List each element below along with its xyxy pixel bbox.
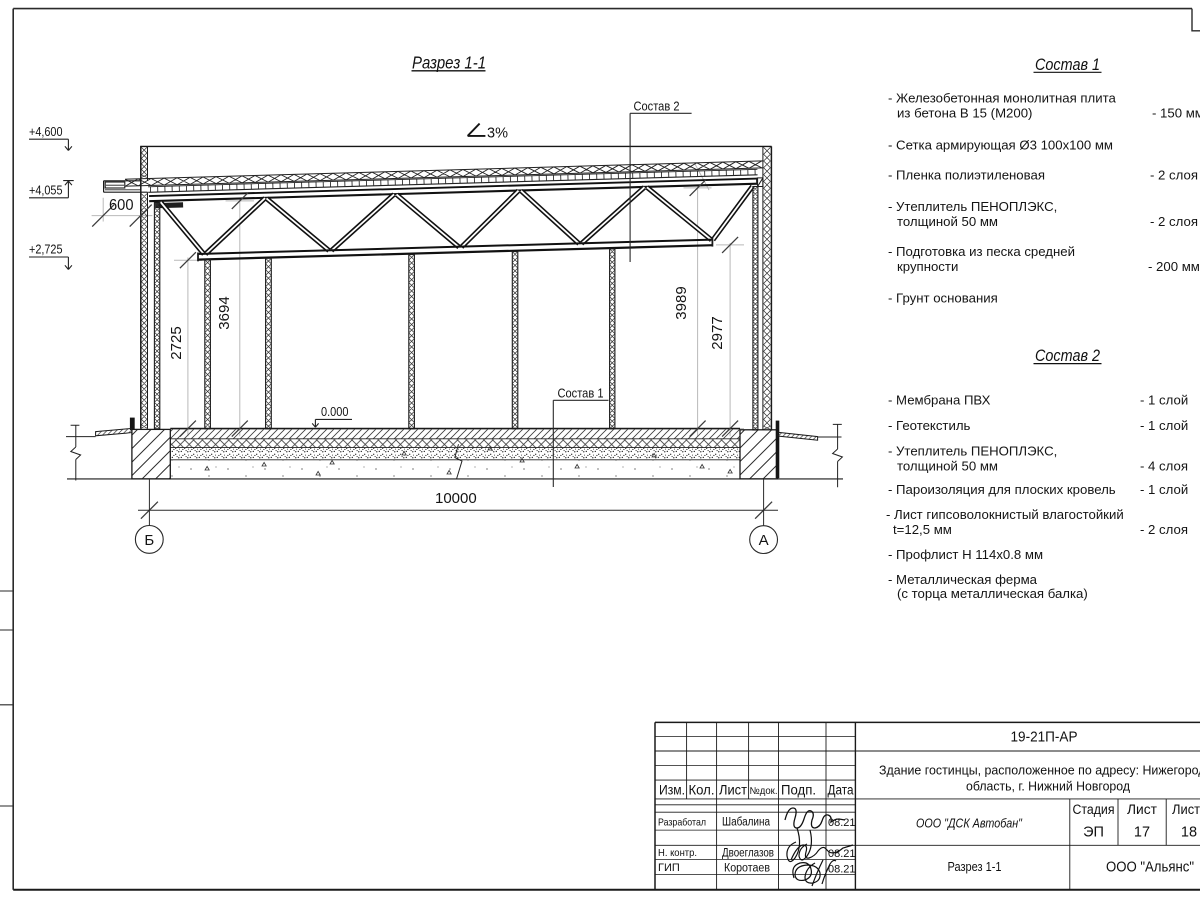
svg-text:- 2 слоя: - 2 слоя [1140, 522, 1188, 537]
svg-text:- Сетка армирующая Ø3 100х100: - Сетка армирующая Ø3 100х100 мм [888, 138, 1113, 153]
svg-text:- 1 слой: - 1 слой [1140, 482, 1188, 497]
svg-text:ГИП: ГИП [658, 862, 680, 874]
svg-text:- Геотекстиль: - Геотекстиль [888, 418, 971, 433]
svg-text:Разрез 1-1: Разрез 1-1 [412, 53, 486, 73]
svg-text:ЭП: ЭП [1083, 825, 1104, 841]
svg-text:600: 600 [109, 197, 134, 214]
svg-text:08.21: 08.21 [828, 848, 856, 860]
svg-text:10000: 10000 [435, 490, 477, 507]
svg-text:+4,055: +4,055 [29, 183, 63, 198]
svg-text:3694: 3694 [216, 296, 233, 329]
svg-text:Стадия: Стадия [1073, 802, 1115, 817]
svg-text:3%: 3% [487, 126, 508, 142]
svg-text:2977: 2977 [709, 316, 726, 349]
svg-text:Состав 1: Состав 1 [1035, 55, 1100, 74]
svg-text:Коротаев: Коротаев [724, 863, 770, 875]
svg-text:2725: 2725 [168, 326, 185, 359]
svg-text:- Мембрана ПВХ: - Мембрана ПВХ [888, 393, 991, 408]
svg-text:толщиной 50 мм: толщиной 50 мм [897, 214, 998, 229]
svg-text:- Подготовка из песка средней: - Подготовка из песка средней [888, 244, 1075, 259]
svg-text:- 150 мм: - 150 мм [1152, 106, 1200, 121]
svg-text:- 1 слой: - 1 слой [1140, 418, 1188, 433]
svg-text:Состав 1: Состав 1 [558, 387, 604, 401]
svg-text:А: А [759, 532, 769, 549]
svg-text:- 4 слоя: - 4 слоя [1140, 459, 1188, 474]
svg-text:из бетона В 15 (М200): из бетона В 15 (М200) [897, 106, 1032, 121]
svg-text:Лист: Лист [1127, 802, 1157, 817]
svg-text:Листов: Листов [1172, 802, 1200, 817]
svg-text:Состав 2: Состав 2 [634, 100, 680, 114]
svg-text:t=12,5 мм: t=12,5 мм [893, 522, 952, 537]
svg-text:08.21: 08.21 [828, 817, 856, 829]
svg-text:+4,600: +4,600 [29, 124, 63, 139]
svg-text:- Утеплитель ПЕНОПЛЭКС,: - Утеплитель ПЕНОПЛЭКС, [888, 444, 1057, 459]
svg-text:Разработал: Разработал [658, 817, 706, 829]
svg-text:08.21: 08.21 [828, 864, 856, 876]
svg-text:№док.: №док. [750, 786, 778, 797]
svg-text:- Пароизоляция для плоских кро: - Пароизоляция для плоских кровель [888, 482, 1116, 497]
svg-text:3989: 3989 [673, 286, 690, 319]
svg-text:Б: Б [144, 532, 154, 549]
svg-text:0.000: 0.000 [321, 404, 349, 419]
svg-text:Изм.: Изм. [659, 783, 685, 798]
svg-text:(с торца металлическая балка): (с торца металлическая балка) [897, 586, 1088, 601]
svg-text:крупности: крупности [897, 259, 958, 274]
svg-text:Двоеглазов: Двоеглазов [722, 848, 774, 860]
svg-text:- Профлист Н 114х0.8 мм: - Профлист Н 114х0.8 мм [888, 547, 1043, 562]
svg-text:Дата: Дата [828, 783, 854, 798]
svg-text:Разрез 1-1: Разрез 1-1 [948, 859, 1002, 874]
svg-text:Состав 2: Состав 2 [1035, 346, 1100, 365]
svg-text:ООО "ДСК Автобан": ООО "ДСК Автобан" [916, 816, 1023, 831]
svg-text:+2,725: +2,725 [29, 242, 63, 257]
svg-text:Подп.: Подп. [781, 783, 816, 798]
svg-text:- Железобетонная монолитная п: - Железобетонная монолитная плита [888, 91, 1117, 106]
svg-text:Лист: Лист [719, 783, 747, 798]
svg-text:Здание гостинцы, расположенное: Здание гостинцы, расположенное по адресу… [879, 763, 1200, 778]
svg-text:ООО "Альянс": ООО "Альянс" [1106, 859, 1194, 876]
svg-text:- 1 слой: - 1 слой [1140, 393, 1188, 408]
svg-text:18: 18 [1181, 825, 1197, 841]
svg-text:Н. контр.: Н. контр. [658, 847, 697, 859]
svg-text:толщиной 50 мм: толщиной 50 мм [897, 459, 998, 474]
svg-text:- Лист гипсоволокнистый влагос: - Лист гипсоволокнистый влагостойкий [886, 507, 1124, 522]
svg-text:19-21П-АР: 19-21П-АР [1011, 730, 1078, 746]
svg-text:- 200 мм: - 200 мм [1148, 259, 1200, 274]
svg-text:- Пленка полиэтиленовая: - Пленка полиэтиленовая [888, 168, 1045, 183]
svg-text:- Металлическая ферма: - Металлическая ферма [888, 572, 1038, 587]
svg-text:Кол.: Кол. [689, 783, 715, 798]
svg-text:- Утеплитель ПЕНОПЛЭКС,: - Утеплитель ПЕНОПЛЭКС, [888, 199, 1057, 214]
svg-text:- Грунт основания: - Грунт основания [888, 291, 998, 306]
svg-text:- 2 слоя: - 2 слоя [1150, 168, 1198, 183]
svg-text:- 2 слоя: - 2 слоя [1150, 214, 1198, 229]
svg-text:Шабалина: Шабалина [722, 817, 771, 829]
svg-text:17: 17 [1134, 825, 1150, 841]
svg-text:область, г. Нижний Новгород: область, г. Нижний Новгород [966, 779, 1130, 794]
